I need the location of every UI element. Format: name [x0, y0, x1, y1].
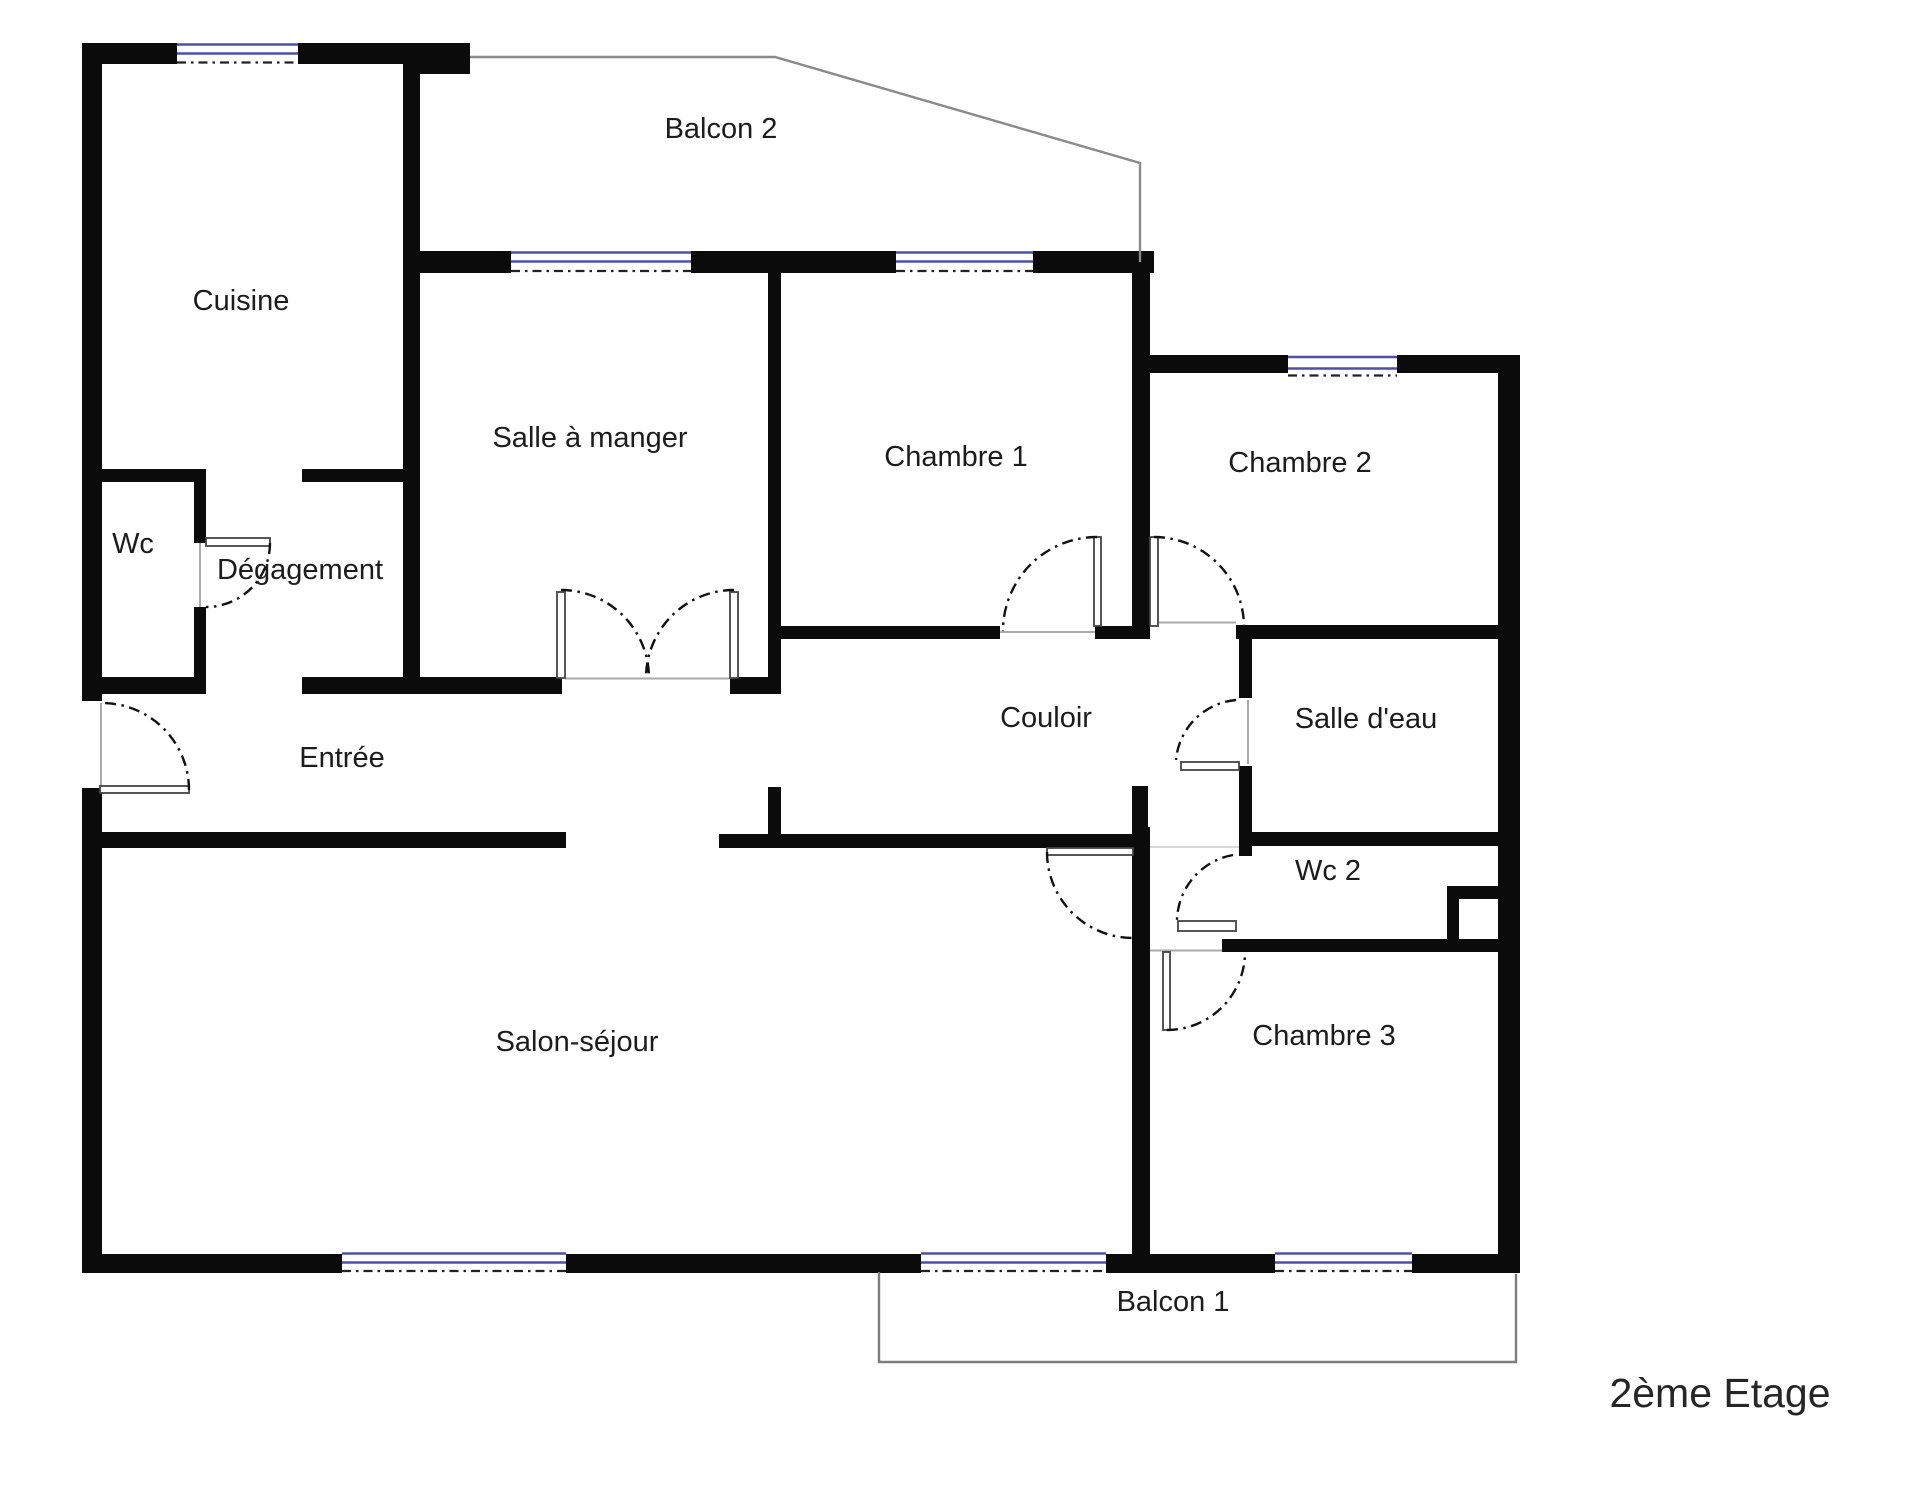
svg-text:Cuisine: Cuisine — [193, 285, 290, 317]
svg-text:Salle à manger: Salle à manger — [492, 422, 687, 454]
svg-text:Wc: Wc — [112, 528, 154, 560]
svg-text:Wc 2: Wc 2 — [1295, 855, 1361, 887]
svg-text:Balcon 1: Balcon 1 — [1117, 1286, 1230, 1318]
svg-text:Chambre 2: Chambre 2 — [1228, 447, 1371, 479]
svg-text:Couloir: Couloir — [1000, 702, 1092, 734]
svg-text:Salon-séjour: Salon-séjour — [496, 1026, 659, 1058]
svg-text:Chambre 3: Chambre 3 — [1252, 1020, 1395, 1052]
svg-text:Dégagement: Dégagement — [217, 554, 383, 586]
svg-text:Balcon 2: Balcon 2 — [665, 113, 778, 145]
svg-text:Chambre 1: Chambre 1 — [884, 441, 1027, 473]
svg-text:Entrée: Entrée — [299, 742, 384, 774]
svg-text:Salle d'eau: Salle d'eau — [1295, 703, 1438, 735]
svg-text:2ème Etage: 2ème Etage — [1609, 1370, 1830, 1416]
